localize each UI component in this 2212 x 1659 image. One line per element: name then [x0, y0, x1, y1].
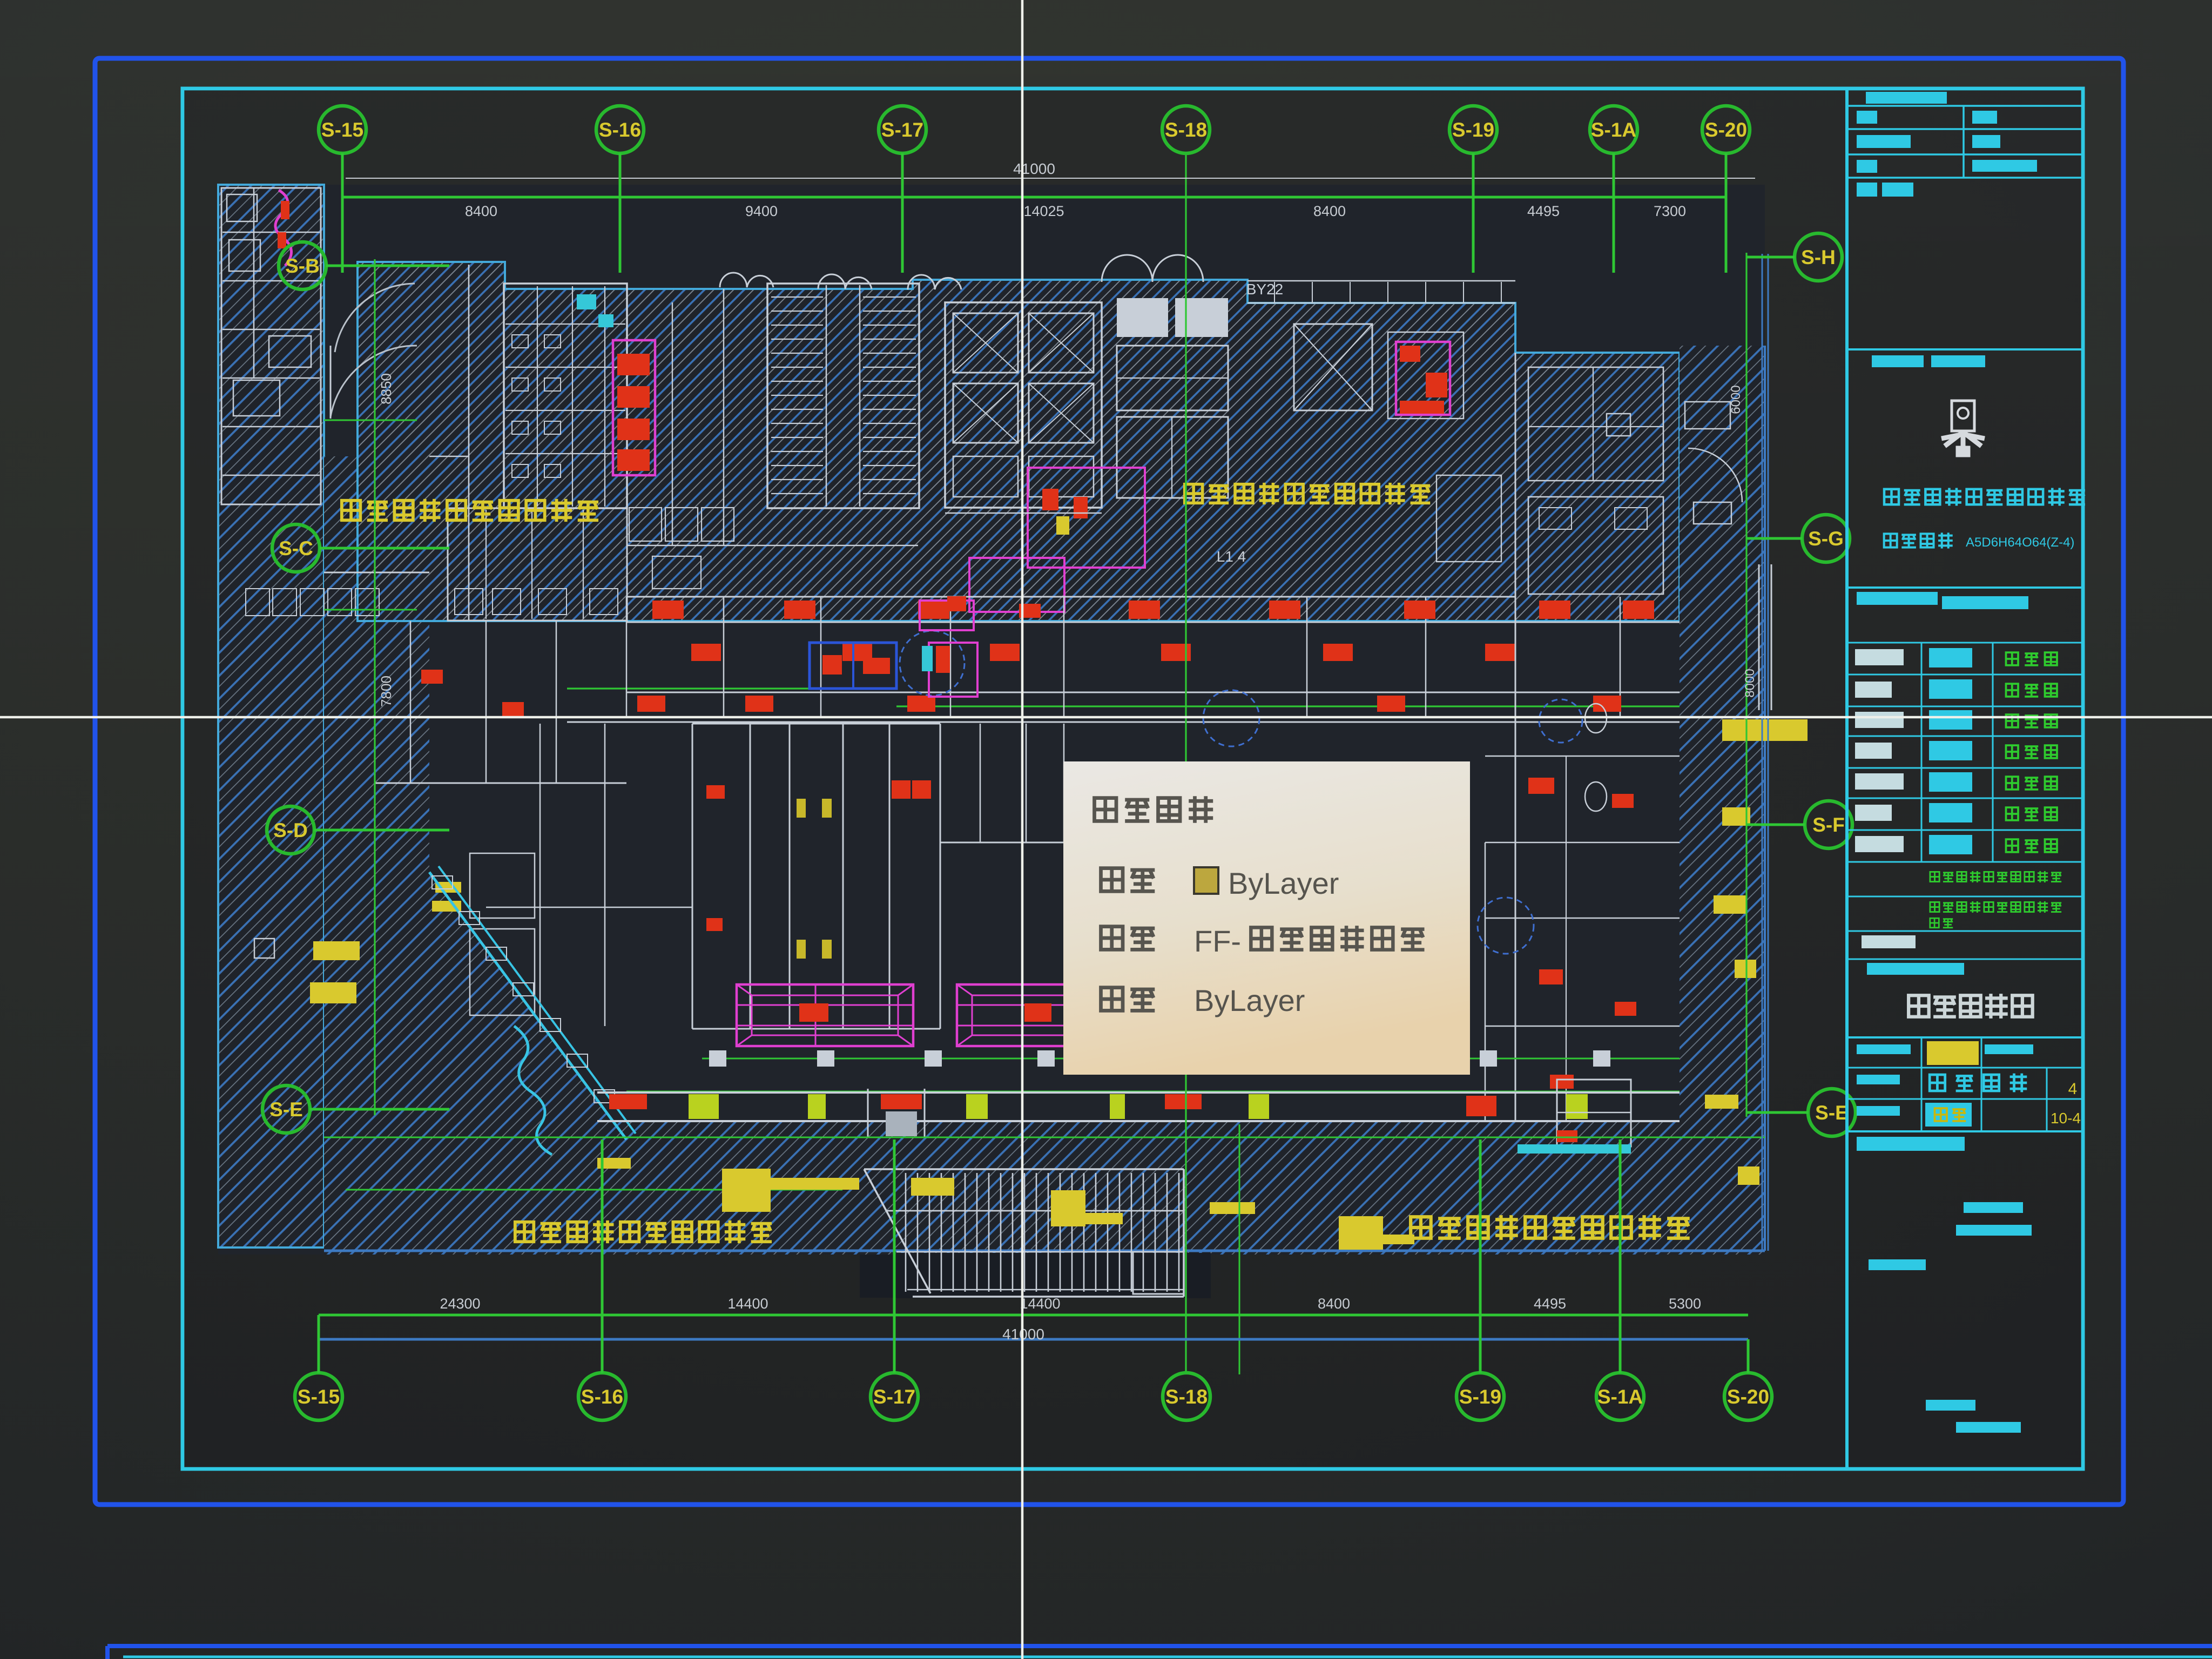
- svg-text:8850: 8850: [378, 373, 394, 404]
- svg-text:S-20: S-20: [1705, 119, 1747, 141]
- svg-text:S-18: S-18: [1165, 119, 1207, 141]
- svg-text:S-1A: S-1A: [1597, 1386, 1643, 1408]
- svg-text:S-G: S-G: [1808, 528, 1844, 550]
- svg-text:A5D6H64O64(Z-4): A5D6H64O64(Z-4): [1966, 535, 2074, 550]
- svg-text:S-18: S-18: [1165, 1386, 1208, 1408]
- svg-text:4495: 4495: [1527, 203, 1560, 219]
- svg-text:4495: 4495: [1534, 1296, 1566, 1312]
- svg-text:S-C: S-C: [279, 537, 313, 559]
- svg-text:S-B: S-B: [285, 255, 320, 277]
- svg-text:24300: 24300: [440, 1296, 480, 1312]
- svg-text:9400: 9400: [745, 203, 778, 219]
- svg-text:8400: 8400: [1318, 1296, 1350, 1312]
- svg-text:14400: 14400: [727, 1296, 768, 1312]
- svg-text:S-H: S-H: [1801, 246, 1836, 268]
- svg-text:S-15: S-15: [321, 119, 363, 141]
- svg-text:6000: 6000: [1729, 385, 1743, 414]
- svg-text:8400: 8400: [1313, 203, 1346, 219]
- svg-text:14400: 14400: [1020, 1296, 1060, 1312]
- svg-text:S-16: S-16: [581, 1386, 623, 1408]
- svg-text:S-17: S-17: [873, 1386, 915, 1408]
- svg-text:BY22: BY22: [1246, 281, 1284, 298]
- svg-text:L1 4: L1 4: [1217, 548, 1246, 565]
- svg-text:4: 4: [2068, 1080, 2078, 1098]
- svg-text:8400: 8400: [465, 203, 497, 219]
- svg-text:41000: 41000: [1013, 160, 1055, 177]
- svg-text:FF-: FF-: [1194, 924, 1241, 958]
- svg-text:S-1A: S-1A: [1591, 119, 1636, 141]
- svg-text:7800: 7800: [378, 676, 394, 707]
- svg-text:S-E: S-E: [269, 1098, 303, 1121]
- svg-text:10-4: 10-4: [2051, 1110, 2081, 1127]
- svg-text:S-F: S-F: [1812, 814, 1845, 836]
- svg-text:S-20: S-20: [1727, 1386, 1769, 1408]
- svg-text:ByLayer: ByLayer: [1228, 866, 1339, 900]
- svg-text:S-19: S-19: [1452, 119, 1494, 141]
- svg-text:S-15: S-15: [298, 1386, 340, 1408]
- svg-text:S-D: S-D: [273, 819, 308, 841]
- svg-text:S-16: S-16: [599, 119, 641, 141]
- svg-text:S-17: S-17: [881, 119, 923, 141]
- svg-text:14025: 14025: [1023, 203, 1064, 219]
- svg-text:S-19: S-19: [1459, 1386, 1501, 1408]
- svg-text:8000: 8000: [1743, 669, 1757, 697]
- svg-text:ByLayer: ByLayer: [1194, 983, 1305, 1017]
- svg-text:5300: 5300: [1669, 1296, 1701, 1312]
- svg-text:S-E: S-E: [1815, 1102, 1849, 1124]
- svg-text:7300: 7300: [1654, 203, 1686, 219]
